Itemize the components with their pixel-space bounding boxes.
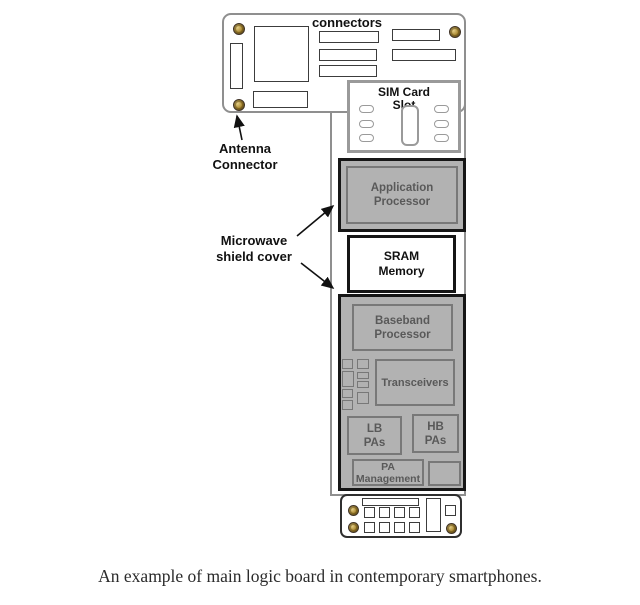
shield-arrow-upper xyxy=(297,206,333,236)
unlabeled-chip xyxy=(428,461,461,486)
hb-pas-label-line2: PAs xyxy=(414,434,457,448)
microwave-label-line2: shield cover xyxy=(196,249,312,265)
connector-pad xyxy=(409,507,420,518)
connector-block xyxy=(426,498,441,532)
application-processor-chip: Application Processor xyxy=(346,166,458,224)
application-processor-shield: Application Processor xyxy=(338,158,466,232)
screw-icon xyxy=(348,505,359,516)
baseband-shield: Baseband Processor Transceivers LB PAs H… xyxy=(338,294,466,491)
baseband-label-line1: Baseband xyxy=(354,314,451,328)
connector-pad xyxy=(445,505,456,516)
screw-icon xyxy=(446,523,457,534)
passive-component xyxy=(342,400,353,410)
passive-component xyxy=(357,381,369,388)
sram-memory-chip: SRAM Memory xyxy=(347,235,456,293)
pa-management-label-line1: PA xyxy=(354,461,422,473)
screw-icon xyxy=(233,23,245,35)
connector-pad xyxy=(392,49,456,61)
connector-block xyxy=(254,26,309,82)
connector-pad xyxy=(379,522,390,533)
connector-pad xyxy=(364,507,375,518)
connector-pad xyxy=(319,49,377,61)
screw-icon xyxy=(348,522,359,533)
shield-arrow-lower xyxy=(301,263,333,288)
hb-pas-label-line1: HB xyxy=(414,420,457,434)
sim-contact-pad xyxy=(359,120,374,128)
connector-pad xyxy=(319,65,377,77)
application-processor-label-line2: Processor xyxy=(348,195,456,209)
lb-pas-chip: LB PAs xyxy=(347,416,402,455)
sim-card-slot: SIM Card Slot xyxy=(347,80,461,153)
logic-board-diagram: connectors SIM Card Slot Application Pro… xyxy=(0,0,640,605)
lb-pas-label-line1: LB xyxy=(349,422,400,436)
connector-pad xyxy=(362,498,419,506)
passive-component xyxy=(342,389,353,398)
application-processor-label-line1: Application xyxy=(348,181,456,195)
antenna-connector-label: Antenna Connector xyxy=(190,141,300,173)
passive-component xyxy=(357,372,369,379)
sim-contact-pad xyxy=(434,105,449,113)
transceivers-label: Transceivers xyxy=(377,376,453,390)
connectors-label: connectors xyxy=(306,15,388,30)
pa-management-chip: PA Management xyxy=(352,459,424,486)
connector-pad xyxy=(364,522,375,533)
connector-pad xyxy=(319,31,379,43)
sram-label-line2: Memory xyxy=(350,264,453,279)
sram-label-line1: SRAM xyxy=(350,249,453,264)
connector-pad xyxy=(409,522,420,533)
sim-contact-pad xyxy=(434,120,449,128)
passive-component xyxy=(357,392,369,404)
connector-block xyxy=(253,91,308,108)
edge-connector xyxy=(230,43,243,89)
bottom-board xyxy=(340,494,462,538)
figure-caption: An example of main logic board in contem… xyxy=(0,566,640,587)
connector-pad xyxy=(394,522,405,533)
screw-icon xyxy=(233,99,245,111)
connector-pad xyxy=(392,29,440,41)
lb-pas-label-line2: PAs xyxy=(349,436,400,450)
passive-component xyxy=(357,359,369,369)
transceivers-chip: Transceivers xyxy=(375,359,455,406)
pa-management-label-line2: Management xyxy=(354,473,422,485)
microwave-label-line1: Microwave xyxy=(196,233,312,249)
sim-contact-pad xyxy=(359,105,374,113)
screw-icon xyxy=(449,26,461,38)
passive-component xyxy=(342,371,354,387)
antenna-arrow xyxy=(237,116,242,140)
connector-pad xyxy=(379,507,390,518)
microwave-shield-cover-label: Microwave shield cover xyxy=(196,233,312,265)
baseband-processor-chip: Baseband Processor xyxy=(352,304,453,351)
baseband-label-line2: Processor xyxy=(354,328,451,342)
antenna-connector-label-line1: Antenna xyxy=(190,141,300,157)
sim-contact-pad xyxy=(434,134,449,142)
antenna-connector-label-line2: Connector xyxy=(190,157,300,173)
sim-contact-pad xyxy=(359,134,374,142)
passive-component xyxy=(342,359,353,369)
sim-slot-opening xyxy=(401,105,419,146)
hb-pas-chip: HB PAs xyxy=(412,414,459,453)
connector-pad xyxy=(394,507,405,518)
